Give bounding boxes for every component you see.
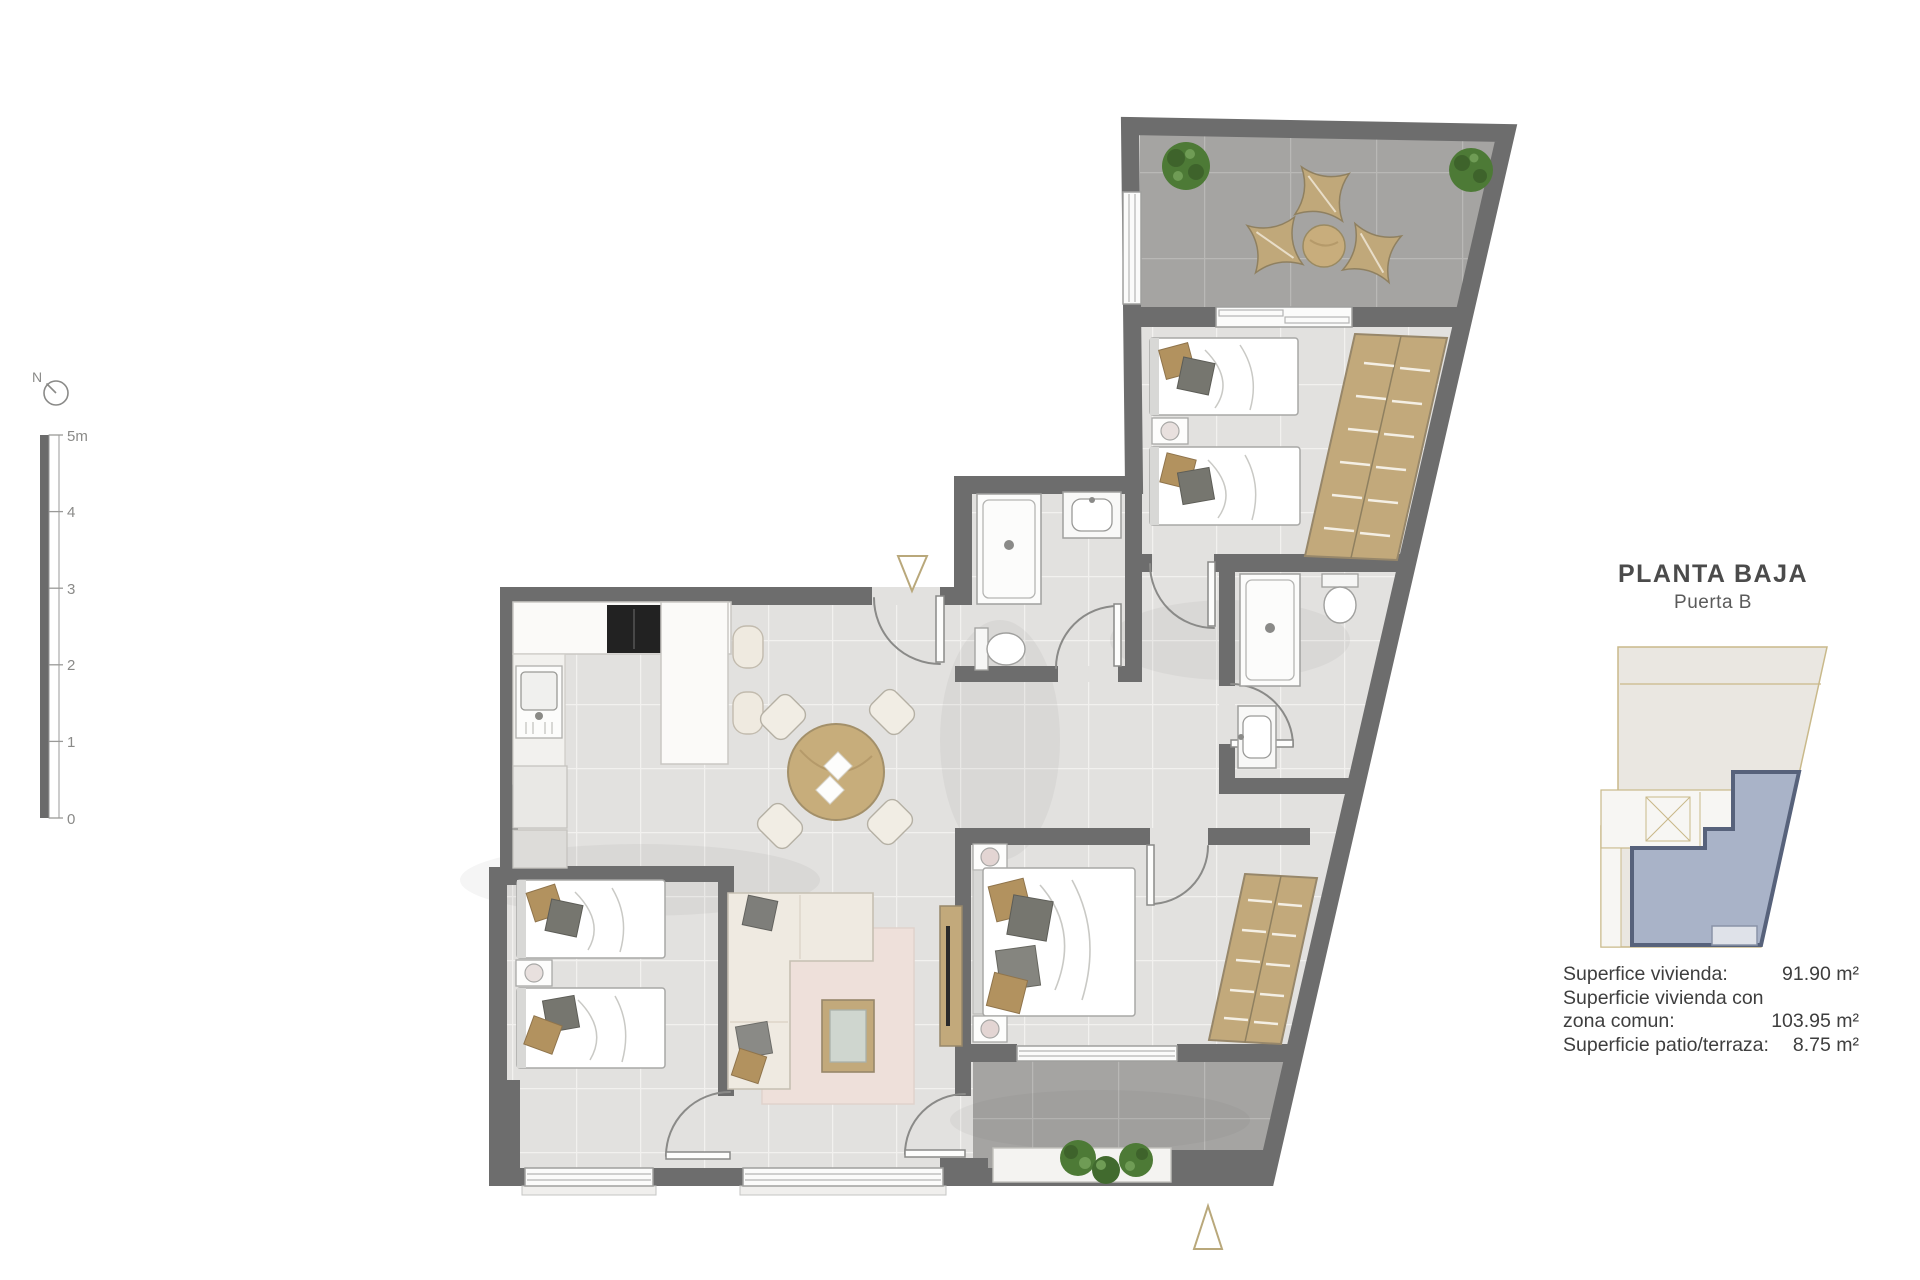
single-bed-icon (1150, 338, 1298, 415)
area-row: Superficie vivienda con (1563, 987, 1859, 1011)
window-terrace-left (1123, 192, 1141, 304)
plant-icon (1060, 1140, 1096, 1176)
key-plan (1601, 647, 1827, 947)
area-value: 8.75 m² (1793, 1034, 1859, 1058)
kitchen-sink-icon (516, 666, 562, 738)
wall-hall-left (1125, 485, 1142, 682)
cabinet-icon (513, 830, 567, 868)
key-plan-notch (1712, 926, 1757, 945)
tv-console-icon (940, 906, 962, 1046)
pillow-icon (742, 895, 778, 931)
window-terrace-slider (1216, 307, 1352, 327)
wall-ensuite-left-a (1219, 554, 1235, 686)
plant-icon (1092, 1156, 1120, 1184)
shower-icon (1240, 574, 1300, 686)
single-bed-icon (517, 880, 665, 958)
window-living (740, 1168, 946, 1195)
wall-master-bottom-b (1177, 1044, 1295, 1062)
nightstand-icon (1152, 418, 1188, 444)
single-bed-icon (1150, 447, 1300, 525)
double-bed-icon (973, 868, 1135, 1016)
sink-icon (1238, 706, 1276, 768)
terrace-chair-icon (1295, 167, 1349, 221)
plant-icon (1449, 148, 1493, 192)
area-row: Superfice vivienda: 91.90 m² (1563, 963, 1859, 987)
wall-bath-bottom-b (1118, 666, 1142, 682)
scale-tick-5m: 5m (67, 428, 88, 445)
area-label: Superficie vivienda con (1563, 987, 1764, 1011)
area-label: Superfice vivienda: (1563, 963, 1728, 987)
wall-patio-bottom (1168, 1150, 1268, 1180)
scale-bar: 5m 4 3 2 1 0 (40, 428, 88, 828)
scale-tick-1: 1 (67, 734, 75, 751)
terrace-table-icon (1303, 225, 1345, 267)
sink-icon (1063, 492, 1121, 538)
wall-master-top-b (1208, 828, 1310, 845)
shower-icon (977, 494, 1041, 604)
area-value: 103.95 m² (1771, 1010, 1859, 1034)
area-row: Superficie patio/terraza: 8.75 m² (1563, 1034, 1859, 1058)
plant-icon (1119, 1143, 1153, 1177)
area-summary: Superfice vivienda: 91.90 m² Superficie … (1563, 963, 1859, 1057)
wall-ensuite-bottom (1219, 778, 1354, 794)
area-row: zona comun: 103.95 m² (1563, 1010, 1859, 1034)
plant-icon (1162, 142, 1210, 190)
window-master (1017, 1046, 1177, 1061)
entry-marker-bottom-icon (1194, 1206, 1222, 1249)
wall-bath-bottom-a (955, 666, 1058, 682)
coffee-table-icon (822, 1000, 874, 1072)
single-bed-icon (517, 988, 665, 1068)
wall-master-top-a (955, 828, 1150, 845)
entry-marker-top-icon (898, 556, 927, 591)
scale-tick-0: 0 (67, 811, 75, 828)
kitchen-island (661, 602, 728, 764)
toilet-icon (1322, 574, 1358, 623)
north-compass-icon: N (32, 369, 68, 405)
stool-icon (733, 626, 763, 668)
page-subtitle: Puerta B (1563, 592, 1863, 614)
wall-patio-left-stub (955, 1044, 971, 1096)
area-value: 91.90 m² (1782, 963, 1859, 987)
nightstand-icon (973, 844, 1007, 870)
wall-patio-corner (940, 1158, 988, 1186)
scale-tick-4: 4 (67, 504, 75, 521)
floor-plan-canvas: N 5m 4 3 2 1 0 (0, 0, 1920, 1280)
wall-bl-corner (498, 1080, 520, 1180)
scale-tick-3: 3 (67, 581, 75, 598)
cabinet-icon (513, 766, 567, 828)
page-title: PLANTA BAJA (1563, 560, 1863, 589)
north-label: N (32, 369, 42, 385)
stool-icon (733, 692, 763, 734)
area-label: zona comun: (1563, 1010, 1675, 1034)
scale-tick-2: 2 (67, 657, 75, 674)
area-label: Superficie patio/terraza: (1563, 1034, 1769, 1058)
nightstand-icon (516, 960, 552, 986)
window-bedroom3 (522, 1168, 656, 1195)
nightstand-icon (973, 1016, 1007, 1042)
